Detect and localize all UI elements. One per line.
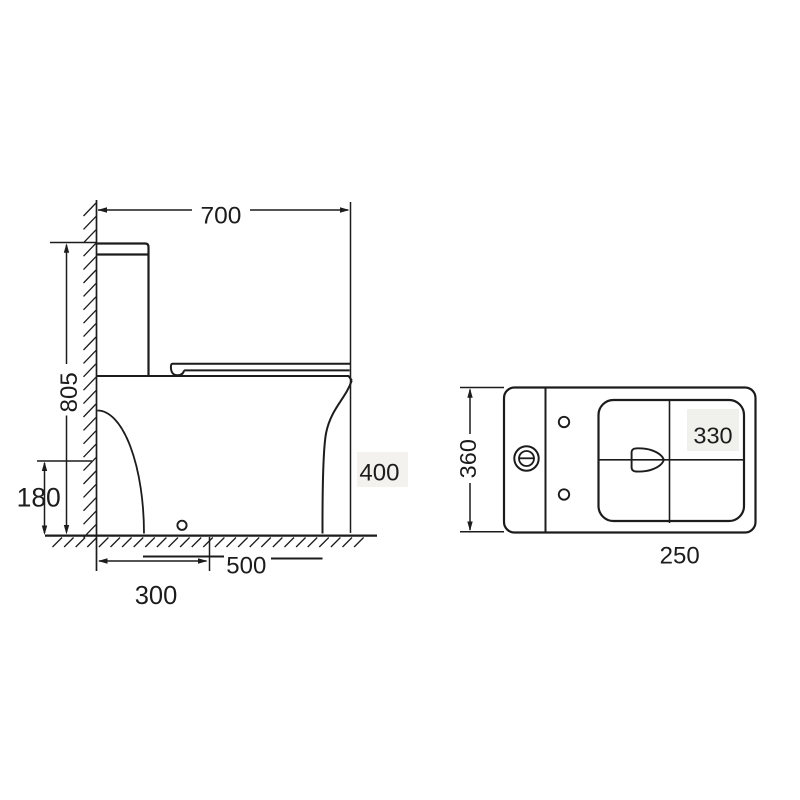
svg-text:330: 330 <box>693 423 732 449</box>
svg-text:250: 250 <box>660 542 700 569</box>
svg-text:300: 300 <box>135 582 178 610</box>
svg-text:700: 700 <box>201 203 242 230</box>
svg-text:360: 360 <box>455 439 481 478</box>
svg-text:500: 500 <box>226 553 266 580</box>
svg-text:400: 400 <box>359 460 399 487</box>
svg-text:805: 805 <box>56 372 83 412</box>
svg-text:180: 180 <box>17 483 61 513</box>
